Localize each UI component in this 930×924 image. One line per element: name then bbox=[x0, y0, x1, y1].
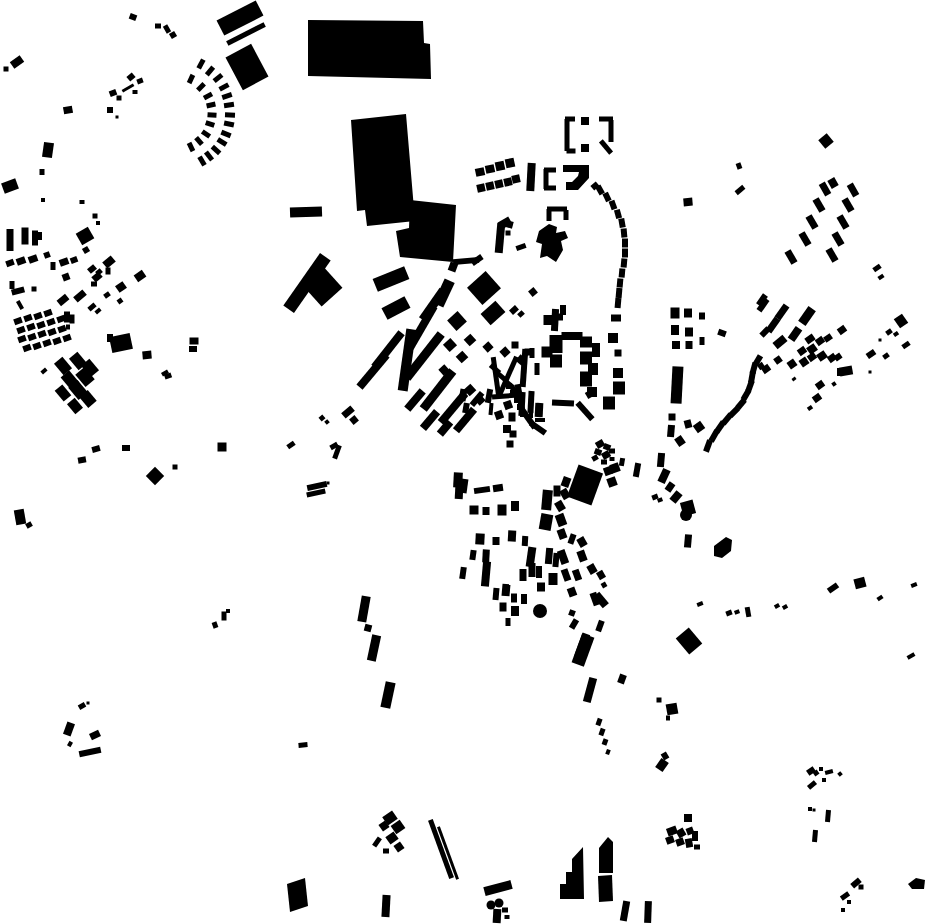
building bbox=[367, 634, 381, 661]
building bbox=[28, 254, 39, 264]
building bbox=[222, 612, 227, 621]
building bbox=[494, 410, 504, 420]
building bbox=[107, 107, 113, 113]
building bbox=[73, 289, 87, 302]
building bbox=[536, 224, 568, 262]
building bbox=[840, 891, 850, 900]
building bbox=[816, 350, 828, 362]
building bbox=[853, 577, 866, 590]
building bbox=[507, 441, 514, 448]
building bbox=[142, 351, 152, 360]
building bbox=[32, 231, 38, 246]
building bbox=[665, 835, 675, 844]
building bbox=[671, 308, 680, 319]
building bbox=[685, 838, 693, 848]
building bbox=[813, 809, 816, 812]
building bbox=[877, 274, 884, 281]
building bbox=[676, 828, 687, 839]
building bbox=[508, 530, 517, 541]
building bbox=[617, 674, 627, 685]
building bbox=[592, 343, 600, 357]
building bbox=[506, 231, 511, 236]
building bbox=[221, 92, 232, 100]
building bbox=[117, 96, 122, 101]
building bbox=[155, 24, 161, 29]
building bbox=[619, 268, 626, 277]
building bbox=[561, 476, 572, 488]
building bbox=[78, 456, 87, 463]
building bbox=[485, 181, 494, 190]
building bbox=[655, 758, 669, 772]
building bbox=[4, 67, 9, 72]
building bbox=[684, 814, 692, 822]
building bbox=[420, 409, 440, 431]
building bbox=[614, 209, 622, 219]
building bbox=[57, 325, 67, 333]
building bbox=[595, 718, 602, 726]
building bbox=[581, 144, 589, 152]
building bbox=[580, 337, 592, 348]
building bbox=[567, 465, 603, 506]
building bbox=[464, 334, 477, 347]
building bbox=[521, 594, 527, 604]
building bbox=[605, 749, 610, 755]
building bbox=[725, 610, 732, 617]
building bbox=[163, 24, 171, 33]
building bbox=[286, 441, 295, 450]
building bbox=[42, 339, 52, 347]
building bbox=[38, 232, 42, 240]
building bbox=[745, 607, 752, 618]
building bbox=[64, 312, 70, 323]
building bbox=[599, 837, 613, 873]
building bbox=[14, 509, 26, 526]
building bbox=[501, 584, 510, 597]
building bbox=[194, 136, 204, 146]
building bbox=[550, 355, 562, 368]
building bbox=[107, 334, 113, 342]
building bbox=[825, 769, 834, 775]
building bbox=[91, 445, 100, 453]
building bbox=[684, 309, 692, 318]
building bbox=[218, 443, 227, 452]
building bbox=[225, 112, 235, 117]
building bbox=[356, 352, 389, 389]
building bbox=[683, 198, 693, 207]
building bbox=[381, 296, 410, 320]
building bbox=[537, 403, 544, 417]
building bbox=[373, 266, 410, 292]
building bbox=[657, 698, 662, 703]
building bbox=[559, 488, 571, 501]
building bbox=[383, 849, 389, 854]
building bbox=[669, 490, 682, 504]
building bbox=[613, 368, 623, 378]
building bbox=[693, 421, 706, 434]
building bbox=[735, 185, 746, 195]
building bbox=[26, 323, 36, 331]
building bbox=[482, 549, 490, 562]
building bbox=[63, 722, 75, 737]
building bbox=[847, 183, 860, 198]
building bbox=[494, 179, 503, 188]
building bbox=[837, 368, 841, 376]
building bbox=[684, 534, 692, 548]
building bbox=[226, 609, 230, 613]
building bbox=[10, 281, 15, 289]
building-round bbox=[680, 509, 692, 521]
building bbox=[226, 44, 269, 90]
building bbox=[308, 20, 431, 79]
building bbox=[617, 278, 624, 287]
building bbox=[576, 549, 587, 562]
building bbox=[666, 716, 670, 721]
building bbox=[872, 264, 881, 273]
building bbox=[94, 308, 101, 315]
building bbox=[560, 847, 584, 899]
building bbox=[212, 621, 219, 628]
building bbox=[893, 331, 899, 337]
building bbox=[459, 567, 467, 580]
building bbox=[224, 121, 235, 128]
building bbox=[46, 318, 56, 326]
building bbox=[211, 145, 222, 155]
building bbox=[699, 313, 705, 320]
building bbox=[782, 604, 788, 610]
building bbox=[476, 183, 485, 192]
building bbox=[437, 419, 453, 436]
building bbox=[503, 177, 512, 186]
building bbox=[535, 418, 545, 422]
building bbox=[841, 908, 845, 912]
building bbox=[475, 533, 485, 544]
building bbox=[714, 537, 732, 558]
building bbox=[324, 419, 330, 425]
building bbox=[831, 381, 837, 387]
building bbox=[380, 681, 395, 709]
building bbox=[287, 878, 308, 912]
building bbox=[349, 415, 359, 425]
building bbox=[79, 747, 102, 757]
building bbox=[23, 314, 33, 322]
building bbox=[492, 588, 499, 600]
building bbox=[541, 490, 553, 511]
building bbox=[827, 582, 839, 593]
building bbox=[10, 55, 24, 68]
building bbox=[57, 294, 70, 306]
building bbox=[37, 330, 47, 338]
building bbox=[517, 310, 525, 318]
building bbox=[594, 448, 603, 456]
building bbox=[62, 273, 71, 282]
building bbox=[549, 573, 558, 585]
building bbox=[567, 149, 576, 154]
building bbox=[106, 268, 111, 275]
building bbox=[318, 414, 325, 421]
building bbox=[586, 563, 597, 575]
building bbox=[692, 831, 698, 841]
building bbox=[807, 780, 817, 790]
building bbox=[616, 288, 623, 298]
building bbox=[51, 262, 56, 270]
building bbox=[66, 325, 70, 330]
building bbox=[885, 328, 893, 336]
building-round bbox=[533, 604, 547, 618]
building bbox=[567, 586, 578, 597]
building bbox=[197, 155, 206, 166]
building bbox=[522, 536, 529, 546]
building bbox=[601, 582, 608, 589]
building bbox=[102, 255, 116, 268]
building bbox=[595, 620, 604, 632]
building bbox=[70, 315, 75, 324]
building bbox=[393, 841, 404, 852]
building bbox=[32, 287, 37, 292]
building bbox=[527, 391, 534, 413]
building bbox=[103, 291, 111, 299]
building bbox=[32, 342, 42, 350]
building bbox=[187, 74, 195, 84]
building bbox=[555, 314, 563, 321]
building bbox=[133, 90, 138, 94]
building bbox=[459, 388, 468, 401]
building bbox=[483, 880, 512, 896]
building bbox=[5, 259, 15, 267]
building bbox=[17, 335, 27, 343]
building bbox=[16, 300, 24, 310]
building bbox=[428, 819, 454, 879]
building bbox=[502, 908, 508, 913]
building bbox=[675, 837, 685, 846]
building bbox=[62, 334, 72, 342]
building bbox=[807, 405, 813, 411]
building bbox=[224, 102, 235, 108]
building bbox=[882, 352, 890, 360]
building bbox=[564, 210, 569, 220]
building bbox=[772, 335, 787, 349]
building bbox=[91, 282, 97, 287]
building bbox=[837, 325, 848, 335]
building bbox=[126, 72, 135, 81]
building bbox=[134, 270, 147, 282]
building bbox=[908, 878, 925, 889]
building bbox=[601, 460, 607, 465]
building bbox=[196, 58, 205, 69]
building bbox=[510, 390, 516, 396]
building bbox=[622, 249, 628, 258]
building bbox=[136, 78, 143, 85]
building bbox=[565, 119, 570, 151]
building bbox=[129, 13, 138, 21]
building bbox=[196, 82, 206, 92]
building bbox=[93, 214, 98, 219]
building bbox=[87, 303, 96, 312]
building bbox=[825, 810, 831, 822]
building bbox=[89, 730, 101, 741]
building bbox=[372, 836, 382, 847]
building bbox=[847, 900, 851, 904]
building bbox=[598, 875, 613, 902]
building bbox=[526, 163, 535, 191]
building bbox=[351, 114, 415, 226]
building bbox=[792, 377, 797, 382]
building bbox=[567, 533, 576, 544]
building bbox=[109, 89, 118, 97]
building bbox=[96, 221, 100, 225]
building bbox=[554, 500, 566, 513]
building bbox=[676, 627, 703, 654]
building bbox=[602, 192, 611, 203]
building bbox=[609, 449, 615, 454]
building bbox=[869, 371, 872, 374]
building bbox=[591, 454, 599, 461]
building bbox=[866, 349, 877, 359]
building bbox=[482, 341, 493, 352]
building bbox=[621, 228, 628, 237]
building-round bbox=[495, 899, 504, 908]
building bbox=[190, 338, 199, 345]
building bbox=[36, 321, 46, 329]
building bbox=[511, 606, 519, 616]
building bbox=[204, 151, 214, 162]
building bbox=[470, 506, 479, 515]
building bbox=[41, 198, 45, 202]
building bbox=[509, 413, 516, 422]
building bbox=[500, 603, 507, 612]
building bbox=[819, 767, 823, 771]
building bbox=[797, 346, 808, 356]
building bbox=[666, 826, 678, 837]
building bbox=[563, 165, 589, 190]
building bbox=[469, 550, 476, 561]
building bbox=[203, 92, 213, 101]
building bbox=[788, 326, 803, 342]
building bbox=[22, 344, 32, 352]
building bbox=[67, 398, 83, 414]
building bbox=[827, 177, 838, 189]
building bbox=[611, 315, 621, 322]
building bbox=[609, 120, 614, 142]
building bbox=[644, 901, 652, 923]
building bbox=[122, 445, 130, 451]
building bbox=[16, 256, 27, 266]
building bbox=[447, 311, 467, 331]
building bbox=[76, 227, 95, 245]
building bbox=[67, 741, 73, 747]
building bbox=[618, 218, 625, 228]
building bbox=[40, 169, 45, 175]
building bbox=[879, 339, 882, 342]
building bbox=[798, 231, 811, 247]
building bbox=[620, 901, 630, 922]
building bbox=[475, 167, 485, 177]
building bbox=[520, 569, 527, 581]
building bbox=[831, 231, 844, 247]
building bbox=[539, 513, 554, 531]
building bbox=[116, 116, 119, 119]
building bbox=[467, 271, 501, 305]
building bbox=[657, 468, 670, 484]
building bbox=[805, 214, 818, 230]
building bbox=[512, 342, 519, 349]
building bbox=[808, 807, 812, 811]
building bbox=[910, 582, 917, 588]
building bbox=[33, 312, 43, 320]
building bbox=[498, 505, 507, 516]
building bbox=[700, 337, 705, 345]
building bbox=[859, 885, 864, 890]
building bbox=[535, 363, 540, 375]
building bbox=[812, 830, 818, 842]
building bbox=[488, 403, 493, 415]
building bbox=[633, 463, 641, 478]
building bbox=[474, 486, 491, 494]
building bbox=[554, 486, 561, 497]
building bbox=[115, 281, 127, 293]
figure-ground-map bbox=[0, 0, 930, 924]
building bbox=[615, 350, 622, 357]
building bbox=[825, 247, 838, 263]
building bbox=[1, 178, 19, 193]
building bbox=[505, 915, 510, 919]
building bbox=[483, 507, 490, 515]
building bbox=[684, 419, 693, 429]
building bbox=[575, 401, 594, 421]
building bbox=[569, 618, 579, 630]
building bbox=[481, 561, 491, 587]
building bbox=[545, 548, 553, 565]
building bbox=[218, 82, 229, 91]
building bbox=[773, 355, 783, 365]
building bbox=[667, 425, 675, 438]
building bbox=[547, 209, 552, 221]
building bbox=[510, 431, 517, 438]
building bbox=[520, 349, 529, 387]
building bbox=[613, 382, 625, 395]
building bbox=[671, 366, 684, 404]
building bbox=[82, 246, 90, 254]
building bbox=[807, 352, 818, 362]
building bbox=[495, 161, 506, 172]
building bbox=[52, 337, 62, 345]
building bbox=[596, 570, 606, 580]
building bbox=[290, 206, 322, 217]
building bbox=[493, 484, 504, 492]
building bbox=[606, 476, 618, 488]
building bbox=[666, 703, 679, 716]
building bbox=[205, 66, 215, 77]
building bbox=[894, 314, 909, 329]
building bbox=[818, 133, 833, 148]
building bbox=[671, 325, 679, 335]
building bbox=[509, 305, 519, 315]
building bbox=[784, 249, 797, 265]
building bbox=[78, 702, 87, 710]
building bbox=[43, 251, 51, 259]
building bbox=[557, 528, 568, 540]
building bbox=[187, 142, 195, 152]
building bbox=[685, 328, 693, 337]
building bbox=[13, 317, 23, 325]
building bbox=[169, 31, 177, 39]
building bbox=[536, 566, 542, 578]
building bbox=[544, 315, 557, 325]
building bbox=[485, 164, 495, 174]
building bbox=[443, 338, 457, 352]
building bbox=[619, 458, 625, 467]
building bbox=[364, 624, 373, 633]
building bbox=[529, 563, 536, 577]
